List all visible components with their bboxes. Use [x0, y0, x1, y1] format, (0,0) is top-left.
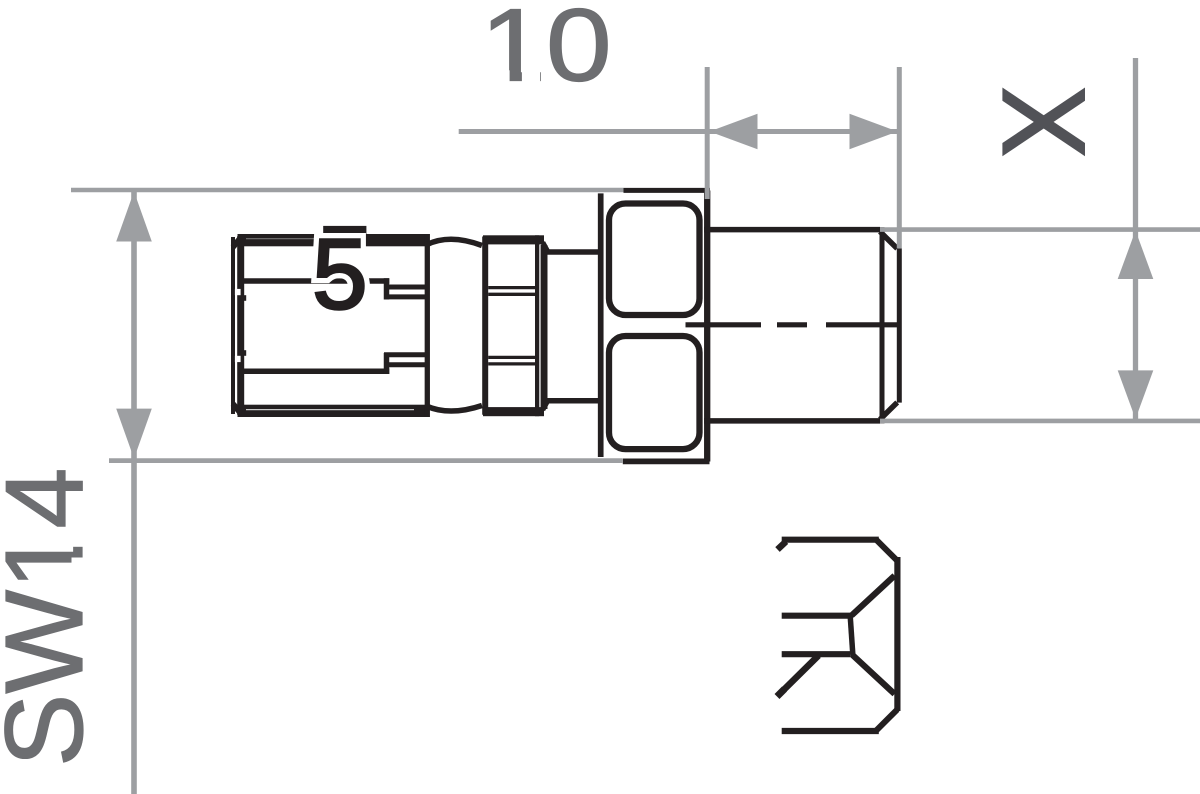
svg-text:5: 5: [312, 219, 368, 331]
svg-text:10: 10: [480, 0, 612, 103]
svg-text:SW14: SW14: [0, 467, 106, 767]
